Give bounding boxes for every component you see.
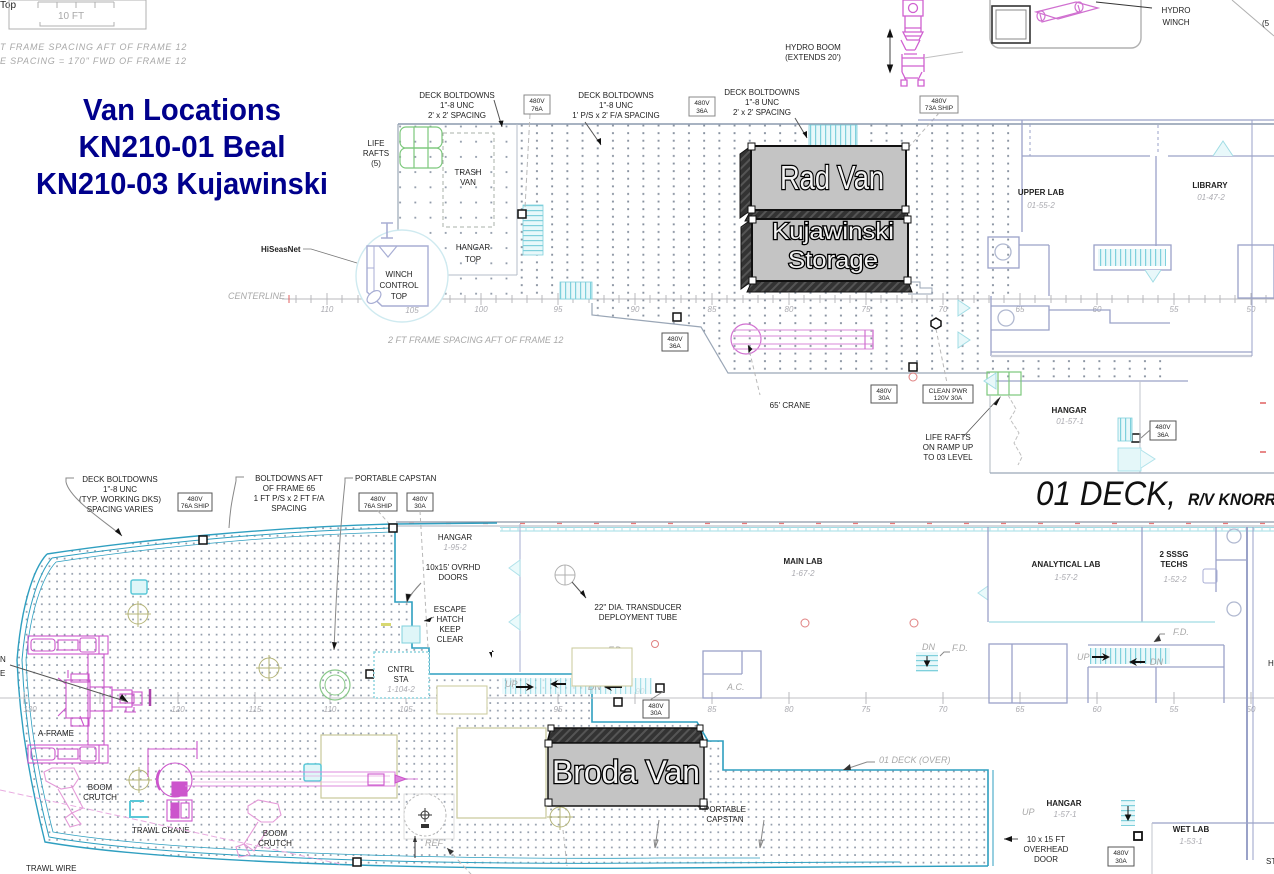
svg-text:DN: DN bbox=[1150, 657, 1163, 667]
svg-text:F.D.: F.D. bbox=[952, 643, 968, 653]
svg-text:MAIN LAB: MAIN LAB bbox=[783, 557, 822, 566]
svg-text:TOP: TOP bbox=[391, 292, 407, 301]
svg-text:BOOM: BOOM bbox=[263, 829, 288, 838]
svg-text:CNTRL: CNTRL bbox=[388, 665, 415, 674]
svg-text:100: 100 bbox=[474, 305, 488, 314]
svg-text:65' CRANE: 65' CRANE bbox=[770, 401, 811, 410]
svg-text:F.D.: F.D. bbox=[1173, 627, 1189, 637]
svg-text:(TYP. WORKING DKS): (TYP. WORKING DKS) bbox=[79, 495, 161, 504]
svg-text:73A SHIP: 73A SHIP bbox=[925, 105, 953, 112]
svg-text:CLEAR: CLEAR bbox=[437, 635, 464, 644]
svg-text:480V: 480V bbox=[370, 496, 386, 503]
svg-text:R/V KNORR: R/V KNORR bbox=[1188, 490, 1274, 509]
svg-text:DEPLOYMENT TUBE: DEPLOYMENT TUBE bbox=[599, 613, 677, 622]
svg-text:REF: REF bbox=[425, 838, 444, 848]
svg-text:76A SHIP: 76A SHIP bbox=[181, 503, 209, 510]
svg-text:1-104-2: 1-104-2 bbox=[387, 685, 415, 694]
svg-text:76A SHIP: 76A SHIP bbox=[364, 503, 392, 510]
svg-text:30A: 30A bbox=[878, 395, 890, 402]
svg-text:480V: 480V bbox=[876, 388, 892, 395]
svg-text:2' x 2' SPACING: 2' x 2' SPACING bbox=[733, 108, 791, 117]
svg-text:UP: UP bbox=[1022, 807, 1035, 817]
svg-text:Storage: Storage bbox=[788, 247, 878, 274]
svg-text:95: 95 bbox=[554, 705, 563, 714]
svg-text:1 FT P/S x 2 FT F/A: 1 FT P/S x 2 FT F/A bbox=[254, 494, 325, 503]
svg-text:480V: 480V bbox=[1113, 850, 1129, 857]
svg-text:WINCH: WINCH bbox=[1162, 18, 1189, 27]
svg-text:85: 85 bbox=[708, 705, 717, 714]
svg-text:120V 30A: 120V 30A bbox=[934, 395, 963, 402]
svg-text:LIFE: LIFE bbox=[368, 139, 385, 148]
svg-text:Kujawinski: Kujawinski bbox=[772, 218, 894, 244]
svg-text:T FRAME SPACING AFT OF FRAME 1: T FRAME SPACING AFT OF FRAME 12 bbox=[0, 42, 187, 52]
svg-text:01-57-1: 01-57-1 bbox=[1056, 417, 1084, 426]
svg-text:480V: 480V bbox=[412, 496, 428, 503]
svg-text:Broda Van: Broda Van bbox=[552, 754, 700, 790]
svg-text:DECK BOLTDOWNS: DECK BOLTDOWNS bbox=[82, 475, 157, 484]
svg-text:480V: 480V bbox=[667, 336, 683, 343]
svg-text:130: 130 bbox=[23, 705, 37, 714]
svg-text:105: 105 bbox=[405, 306, 419, 315]
svg-text:UP: UP bbox=[1077, 652, 1090, 662]
svg-text:BOLTDOWNS AFT: BOLTDOWNS AFT bbox=[255, 474, 323, 483]
svg-text:1-57-1: 1-57-1 bbox=[1053, 810, 1076, 819]
svg-text:70: 70 bbox=[939, 705, 948, 714]
svg-text:480V: 480V bbox=[694, 100, 710, 107]
svg-text:480V: 480V bbox=[187, 496, 203, 503]
svg-text:01 DECK (OVER): 01 DECK (OVER) bbox=[879, 755, 951, 765]
svg-text:ESCAPE: ESCAPE bbox=[434, 605, 466, 614]
svg-text:Van Locations: Van Locations bbox=[83, 92, 281, 127]
svg-text:H: H bbox=[1268, 659, 1274, 668]
svg-text:SPACING: SPACING bbox=[271, 504, 306, 513]
svg-text:Rad Van: Rad Van bbox=[780, 159, 884, 196]
svg-text:KEEP: KEEP bbox=[439, 625, 460, 634]
svg-text:UPPER LAB: UPPER LAB bbox=[1018, 188, 1064, 197]
svg-text:105: 105 bbox=[399, 705, 413, 714]
svg-text:WET LAB: WET LAB bbox=[1173, 825, 1210, 834]
svg-text:OF FRAME 65: OF FRAME 65 bbox=[263, 484, 316, 493]
svg-text:75: 75 bbox=[862, 705, 871, 714]
svg-text:HANGAR: HANGAR bbox=[1051, 406, 1086, 415]
svg-text:Top: Top bbox=[0, 0, 17, 11]
svg-text:1"-8 UNC: 1"-8 UNC bbox=[103, 485, 137, 494]
svg-text:36A: 36A bbox=[696, 108, 708, 115]
svg-text:CAPSTAN: CAPSTAN bbox=[706, 815, 743, 824]
svg-text:1"-8 UNC: 1"-8 UNC bbox=[440, 101, 474, 110]
svg-text:55: 55 bbox=[1170, 705, 1179, 714]
svg-text:36A: 36A bbox=[1157, 432, 1169, 439]
svg-text:VAN: VAN bbox=[460, 178, 476, 187]
svg-text:1"-8 UNC: 1"-8 UNC bbox=[745, 98, 779, 107]
svg-text:480V: 480V bbox=[1155, 424, 1171, 431]
svg-text:115: 115 bbox=[249, 705, 262, 714]
svg-text:A-FRAME: A-FRAME bbox=[38, 729, 74, 738]
svg-text:55: 55 bbox=[1170, 305, 1179, 314]
svg-text:E SPACING = 170" FWD OF FRAME: E SPACING = 170" FWD OF FRAME 12 bbox=[0, 56, 187, 66]
svg-text:HYDRO: HYDRO bbox=[1162, 6, 1191, 15]
svg-text:STO: STO bbox=[1266, 857, 1274, 866]
svg-text:DOOR: DOOR bbox=[1034, 855, 1058, 864]
svg-text:KN210-03 Kujawinski: KN210-03 Kujawinski bbox=[36, 166, 328, 201]
svg-text:CLEAN PWR: CLEAN PWR bbox=[929, 388, 968, 395]
svg-text:1-57-2: 1-57-2 bbox=[1054, 573, 1078, 582]
svg-text:OVERHEAD: OVERHEAD bbox=[1024, 845, 1069, 854]
svg-text:80: 80 bbox=[785, 305, 794, 314]
svg-text:480V: 480V bbox=[648, 703, 664, 710]
svg-text:TRAWL CRANE: TRAWL CRANE bbox=[132, 826, 190, 835]
svg-text:2' x 2' SPACING: 2' x 2' SPACING bbox=[428, 111, 486, 120]
svg-text:HiSeasNet: HiSeasNet bbox=[261, 245, 301, 254]
svg-text:76A: 76A bbox=[531, 106, 543, 113]
svg-text:110: 110 bbox=[324, 705, 337, 714]
svg-text:TO 03 LEVEL: TO 03 LEVEL bbox=[923, 453, 973, 462]
svg-text:N: N bbox=[0, 655, 6, 664]
svg-text:36A: 36A bbox=[669, 343, 681, 350]
svg-text:HATCH: HATCH bbox=[437, 615, 464, 624]
svg-text:DECK BOLTDOWNS: DECK BOLTDOWNS bbox=[419, 91, 494, 100]
svg-text:HYDRO BOOM: HYDRO BOOM bbox=[785, 43, 841, 52]
svg-text:CENTERLINE: CENTERLINE bbox=[228, 291, 286, 301]
svg-text:50: 50 bbox=[1247, 305, 1256, 314]
svg-text:TRASH: TRASH bbox=[454, 168, 481, 177]
svg-text:A.C.: A.C. bbox=[726, 682, 745, 692]
svg-text:TOP: TOP bbox=[465, 255, 481, 264]
svg-text:ANALYTICAL LAB: ANALYTICAL LAB bbox=[1032, 560, 1101, 569]
svg-text:PORTABLE: PORTABLE bbox=[704, 805, 746, 814]
svg-text:01-47-2: 01-47-2 bbox=[1197, 193, 1225, 202]
svg-text:90: 90 bbox=[631, 305, 640, 314]
svg-text:CRUTCH: CRUTCH bbox=[258, 839, 292, 848]
svg-text:120: 120 bbox=[171, 705, 185, 714]
svg-text:10 x 15 FT: 10 x 15 FT bbox=[1027, 835, 1065, 844]
svg-text:30A: 30A bbox=[414, 503, 426, 510]
svg-text:DECK BOLTDOWNS: DECK BOLTDOWNS bbox=[724, 88, 799, 97]
svg-text:480V: 480V bbox=[931, 98, 947, 105]
svg-text:01-55-2: 01-55-2 bbox=[1027, 201, 1055, 210]
svg-text:2 SSSG: 2 SSSG bbox=[1160, 550, 1189, 559]
svg-text:DOORS: DOORS bbox=[438, 573, 467, 582]
svg-text:KN210-01 Beal: KN210-01 Beal bbox=[79, 129, 286, 164]
svg-text:1-52-2: 1-52-2 bbox=[1163, 575, 1187, 584]
svg-text:30A: 30A bbox=[650, 710, 662, 717]
svg-text:1' P/S x 2' F/A SPACING: 1' P/S x 2' F/A SPACING bbox=[572, 111, 659, 120]
svg-text:CRUTCH: CRUTCH bbox=[83, 793, 117, 802]
svg-text:75: 75 bbox=[862, 305, 871, 314]
svg-text:RAFTS: RAFTS bbox=[363, 149, 389, 158]
svg-text:WINCH: WINCH bbox=[385, 270, 412, 279]
svg-text:10x15' OVRHD: 10x15' OVRHD bbox=[426, 563, 481, 572]
svg-text:HANGAR: HANGAR bbox=[456, 243, 490, 252]
svg-text:01 DECK,: 01 DECK, bbox=[1036, 475, 1176, 513]
svg-text:PORTABLE CAPSTAN: PORTABLE CAPSTAN bbox=[355, 474, 437, 483]
svg-text:(5): (5) bbox=[371, 159, 381, 168]
svg-text:LIBRARY: LIBRARY bbox=[1192, 181, 1228, 190]
svg-text:480V: 480V bbox=[529, 98, 545, 105]
svg-text:TRAWL WIRE: TRAWL WIRE bbox=[26, 864, 77, 873]
svg-text:80: 80 bbox=[785, 705, 794, 714]
svg-text:LIFE RAFTS: LIFE RAFTS bbox=[925, 433, 970, 442]
svg-text:ON RAMP UP: ON RAMP UP bbox=[923, 443, 974, 452]
svg-text:1-67-2: 1-67-2 bbox=[791, 569, 815, 578]
svg-text:CONTROL: CONTROL bbox=[379, 281, 419, 290]
svg-text:SPACING VARIES: SPACING VARIES bbox=[87, 505, 153, 514]
svg-text:DN: DN bbox=[922, 642, 935, 652]
svg-text:60: 60 bbox=[1093, 705, 1102, 714]
svg-text:E: E bbox=[0, 669, 5, 678]
svg-text:1"-8 UNC: 1"-8 UNC bbox=[599, 101, 633, 110]
svg-text:22" DIA. TRANSDUCER: 22" DIA. TRANSDUCER bbox=[594, 603, 681, 612]
svg-text:(5: (5 bbox=[1262, 19, 1270, 28]
svg-text:BOOM: BOOM bbox=[88, 783, 113, 792]
svg-text:HANGAR: HANGAR bbox=[438, 533, 472, 542]
svg-text:85: 85 bbox=[708, 305, 717, 314]
svg-text:95: 95 bbox=[554, 305, 563, 314]
svg-text:70: 70 bbox=[939, 305, 948, 314]
svg-text:UP: UP bbox=[505, 679, 518, 689]
svg-text:(EXTENDS 20'): (EXTENDS 20') bbox=[785, 53, 841, 62]
svg-text:1-53-1: 1-53-1 bbox=[1179, 837, 1202, 846]
svg-text:30A: 30A bbox=[1115, 858, 1127, 865]
svg-text:2 FT FRAME SPACING AFT OF: 2 FT FRAME SPACING AFT OF FRAME 12 bbox=[387, 335, 563, 345]
svg-text:110: 110 bbox=[321, 305, 334, 314]
svg-text:10 FT: 10 FT bbox=[58, 11, 84, 22]
svg-text:HANGAR: HANGAR bbox=[1046, 799, 1081, 808]
svg-text:65: 65 bbox=[1016, 705, 1025, 714]
svg-text:STA: STA bbox=[394, 675, 410, 684]
svg-text:TECHS: TECHS bbox=[1160, 560, 1188, 569]
svg-text:DECK BOLTDOWNS: DECK BOLTDOWNS bbox=[578, 91, 653, 100]
svg-text:1-95-2: 1-95-2 bbox=[443, 543, 467, 552]
